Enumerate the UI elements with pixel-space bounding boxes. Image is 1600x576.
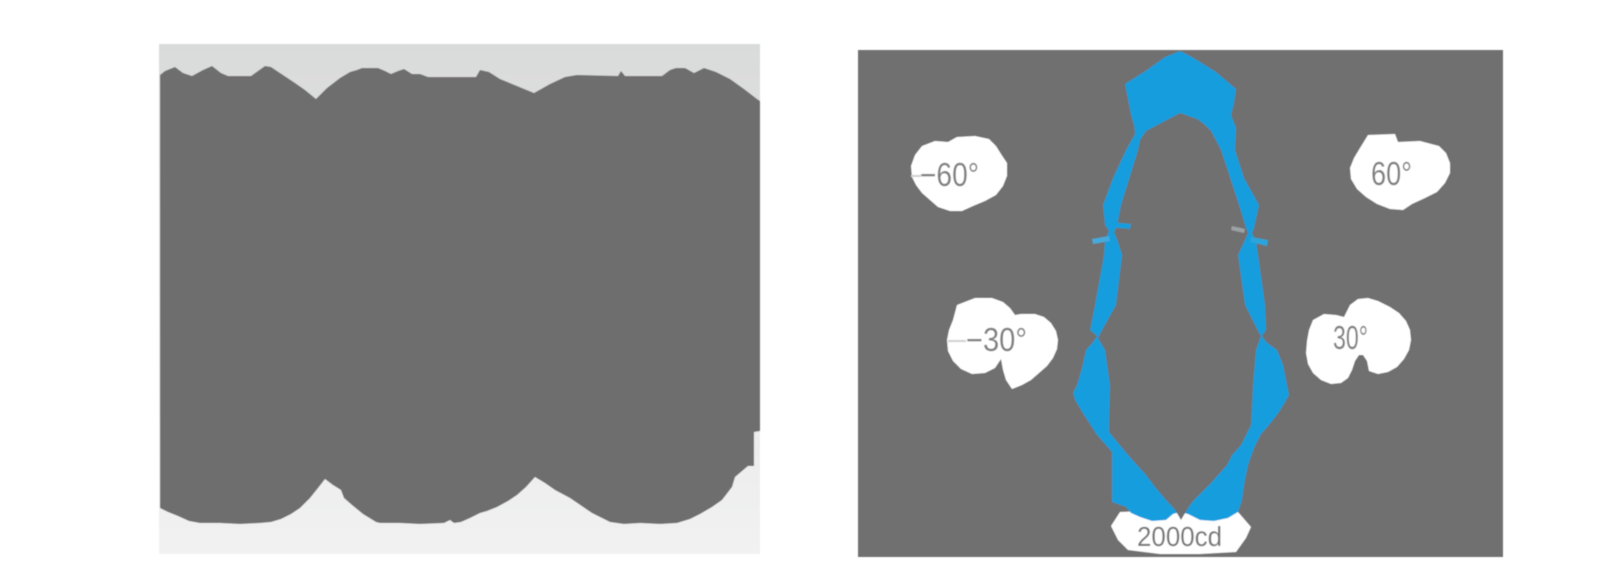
svg-text:−30°: −30° [966,321,1027,358]
svg-text:30°: 30° [1333,319,1368,356]
svg-text:2000cd: 2000cd [1137,521,1222,552]
svg-text:−60°: −60° [920,156,979,193]
svg-text:60°: 60° [1371,155,1412,192]
